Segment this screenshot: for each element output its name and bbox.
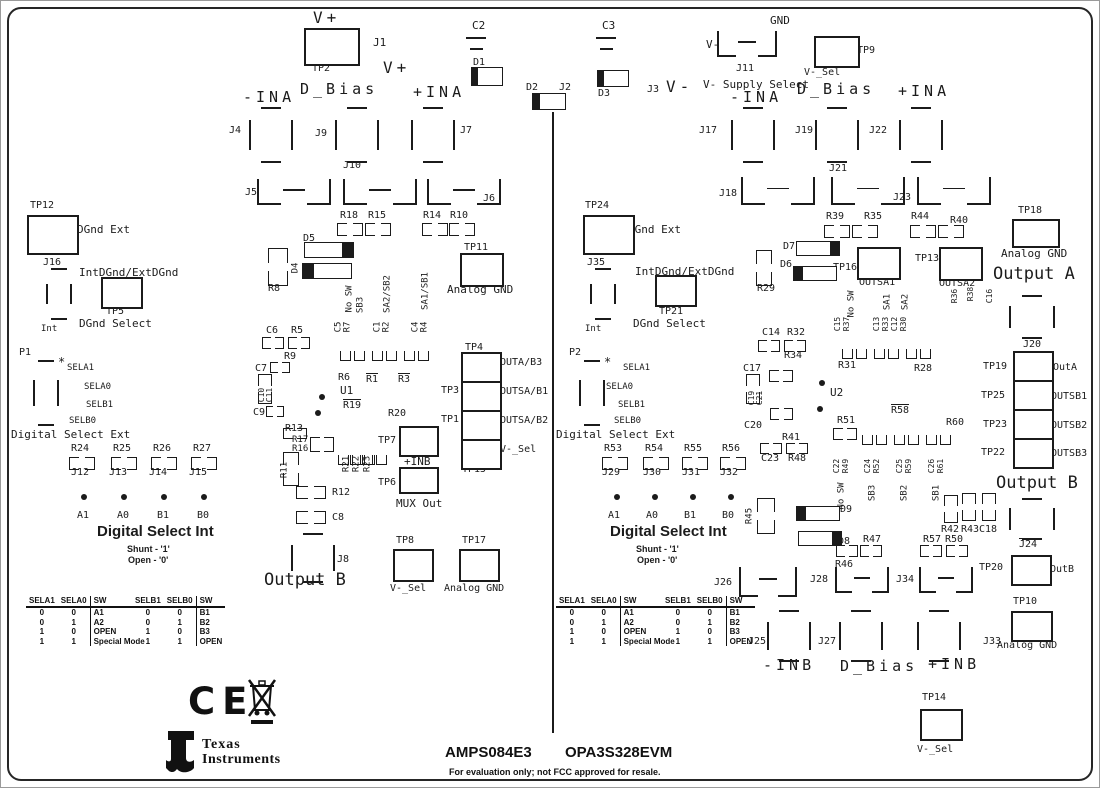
diode-body: [796, 241, 840, 256]
label-r48: R48: [788, 454, 806, 464]
resistor-pads: [69, 457, 95, 470]
label-r19: R19: [343, 399, 361, 411]
truth-table-cell: OPEN: [196, 637, 225, 647]
jumper-3pin: [411, 107, 455, 163]
resistor-pads: [946, 545, 968, 557]
label-c9: C9: [253, 408, 265, 418]
brand-instruments: Instruments: [202, 752, 281, 768]
resistor-pads: [938, 225, 964, 238]
label-tp1: TP1: [441, 415, 459, 425]
jumper-vertical: [46, 268, 72, 320]
label-c15: C15: [834, 317, 842, 331]
testpoint-box: [1012, 219, 1060, 248]
resistor-pads: [758, 340, 780, 352]
label-j5: J5: [245, 188, 257, 198]
label-outa: OutA: [1053, 363, 1077, 373]
label-r5: R5: [291, 326, 303, 336]
label-r54: R54: [645, 444, 663, 454]
label-r47: R47: [863, 535, 881, 545]
testpoint-box: [304, 28, 360, 66]
label-v+: V+: [383, 60, 410, 76]
label-analog-gnd: Analog GND: [444, 584, 504, 594]
truth-table-header: SELA0: [58, 596, 90, 607]
jumper-3pin: [1009, 295, 1055, 339]
label-c8: C8: [332, 513, 344, 523]
label-r56: R56: [722, 444, 740, 454]
pad-pair: [404, 346, 432, 365]
label-sa2: SA2: [902, 294, 911, 310]
label-p1: P1: [19, 348, 31, 358]
label-a1: A1: [608, 511, 620, 521]
ti-logo-icon: [164, 729, 198, 777]
weee-bin-icon: [247, 678, 277, 730]
resistor-pads: [836, 545, 858, 557]
via-dot: [614, 494, 620, 500]
label-u1: U1: [340, 385, 353, 396]
capacitor-symbol: [466, 37, 486, 50]
label-+ina: +INA: [413, 85, 465, 100]
testpoint-box: [655, 275, 697, 307]
label-tp21: TP21: [659, 307, 683, 317]
resistor-pads: [786, 443, 808, 454]
label-shunt-1-: Shunt - '1': [636, 545, 679, 554]
label-j34: J34: [896, 575, 914, 585]
label-analog-gnd: Analog GND: [997, 641, 1057, 651]
via-dot: [817, 406, 823, 412]
testpoint-box: [583, 215, 635, 255]
assembly-number: AMPS084E3: [445, 744, 532, 761]
label-r58: R58: [891, 404, 909, 416]
label-sela1: SELA1: [67, 364, 94, 373]
truth-table-header: SW: [196, 596, 225, 607]
component-pads-vertical: [268, 248, 288, 286]
label-d-bias: D_Bias: [797, 82, 875, 97]
diode-body: [304, 242, 354, 258]
testpoint-box: [814, 36, 860, 68]
truth-table-header: SELB1: [132, 596, 164, 607]
truth-table-cell: 1: [164, 618, 196, 628]
component-pads-vertical: [944, 495, 958, 523]
center-divider-line: [552, 112, 554, 733]
label-j2: J2: [559, 83, 571, 93]
label-outsa-b2: OUTSA/B2: [500, 416, 548, 426]
label-tp19: TP19: [983, 362, 1007, 372]
resistor-pads: [283, 428, 307, 439]
truth-table-cell: 1: [164, 637, 196, 647]
label-digital-select-ext: Digital Select Ext: [556, 429, 675, 440]
testpoint-box: [461, 352, 502, 383]
truth-table-cell: 0: [588, 627, 620, 637]
truth-table-header: SELA0: [588, 596, 620, 607]
label-u2: U2: [830, 387, 843, 398]
label-tp13: TP13: [915, 254, 939, 264]
label-digital-select-int: Digital Select Int: [610, 524, 727, 539]
resistor-pads: [296, 486, 326, 499]
label-r14: R14: [423, 211, 441, 221]
label-c16: C16: [986, 289, 994, 303]
truth-table-cell: B2: [196, 618, 225, 628]
truth-table-header: SELB1: [662, 596, 694, 607]
label-digital-select-ext: Digital Select Ext: [11, 429, 130, 440]
pad-pair: [894, 430, 922, 449]
label-sb2: SB2: [901, 485, 910, 501]
truth-table-header: SELA1: [26, 596, 58, 607]
label-shunt-1-: Shunt - '1': [127, 545, 170, 554]
resistor-pads: [824, 225, 850, 238]
label-dgnd-ext: DGnd Ext: [628, 224, 681, 235]
label-r12: R12: [332, 488, 350, 498]
truth-table-cell: 1: [26, 637, 58, 647]
jumper-3pin: [335, 107, 379, 163]
jumper-vertical: [579, 360, 605, 426]
label-open-0-: Open - '0': [637, 556, 677, 565]
pad-pair: [862, 430, 890, 449]
label-tp25: TP25: [981, 391, 1005, 401]
diode-body: [796, 506, 840, 521]
truth-table-cell: 0: [662, 607, 694, 618]
label-b1: B1: [157, 511, 169, 521]
resistor-pads: [422, 223, 448, 236]
label-tp22: TP22: [981, 448, 1005, 458]
diode-body: [793, 266, 837, 281]
label-d4: D4: [292, 263, 301, 274]
label-output-a: Output A: [993, 266, 1075, 283]
label-r35: R35: [864, 212, 882, 222]
testpoint-box: [1013, 409, 1054, 440]
truth-table-cell: B1: [196, 607, 225, 618]
truth-table-cell: 1: [26, 627, 58, 637]
truth-table-cell: 1: [662, 627, 694, 637]
via-dot: [319, 394, 325, 400]
label-+ina: +INA: [898, 84, 950, 99]
label-j11: J11: [736, 64, 754, 74]
label-r9: R9: [284, 352, 296, 362]
label-a1: A1: [77, 511, 89, 521]
truth-table: SELA1SELA0SW00A101A210OPEN11Special Mode: [26, 596, 148, 646]
truth-table-cell: 1: [58, 618, 90, 628]
via-dot: [652, 494, 658, 500]
label-r7: R7: [344, 322, 353, 333]
label-v-sel: V-_Sel: [917, 745, 953, 755]
truth-table-cell: B2: [726, 618, 755, 628]
truth-table-cell: 0: [164, 627, 196, 637]
label-r2: R2: [383, 322, 392, 333]
truth-table-cell: 0: [132, 618, 164, 628]
label-r1: R1: [366, 373, 378, 385]
label-c12: C12: [891, 317, 899, 331]
label-outb: OutB: [1050, 565, 1074, 575]
label-c20: C20: [744, 421, 762, 431]
label-sb3: SB3: [869, 485, 878, 501]
label-r3: R3: [398, 373, 410, 385]
label-r27: R27: [193, 444, 211, 454]
truth-table-header: SELB0: [164, 596, 196, 607]
label-open-0-: Open - '0': [128, 556, 168, 565]
label-dgnd-ext: DGnd Ext: [77, 224, 130, 235]
label-j17: J17: [699, 126, 717, 136]
label-r38: R38: [967, 287, 975, 301]
label-c26: C26: [928, 459, 936, 473]
label-sb1: SB1: [933, 485, 942, 501]
label-sa1-sb1: SA1/SB1: [422, 272, 431, 310]
label-dgnd-select: DGnd Select: [79, 318, 152, 329]
label-tp10: TP10: [1013, 597, 1037, 607]
product-name: OPA3S328EVM: [565, 744, 672, 761]
label-sa1: SA1: [884, 294, 893, 310]
truth-table-cell: 0: [58, 607, 90, 618]
pad-pair: [874, 344, 902, 363]
label-j27: J27: [818, 637, 836, 647]
label-sela0: SELA0: [606, 383, 633, 392]
label-sb3: SB3: [357, 297, 366, 313]
via-dot: [728, 494, 734, 500]
truth-table-header: SELB0: [694, 596, 726, 607]
pad-pair: [842, 344, 870, 363]
truth-table-grid: SELB1SELB0SW00B101B210B311OPEN: [132, 596, 225, 646]
testpoint-box: [1013, 351, 1054, 382]
via-dot: [690, 494, 696, 500]
label--ina: -INA: [243, 90, 295, 105]
component-pads-vertical: [757, 498, 775, 534]
jumper-3pin: [815, 107, 859, 163]
truth-table-cell: 1: [588, 637, 620, 647]
label-r26: R26: [153, 444, 171, 454]
component-pads-vertical: [283, 452, 299, 486]
jumper-2pin: [741, 177, 815, 205]
resistor-pads: [769, 370, 793, 382]
resistor-pads: [602, 457, 628, 470]
label-b0: B0: [197, 511, 209, 521]
diode-body: [798, 531, 842, 546]
truth-table-cell: 1: [132, 627, 164, 637]
truth-table-cell: 0: [556, 618, 588, 628]
label-d2: D2: [526, 83, 538, 93]
component-pads-vertical: [982, 493, 996, 521]
testpoint-box: [461, 410, 502, 441]
label-j9: J9: [315, 129, 327, 139]
label-a0: A0: [646, 511, 658, 521]
resistor-pads: [682, 457, 708, 470]
label-r53: R53: [604, 444, 622, 454]
truth-table-cell: 0: [662, 618, 694, 628]
label-tp12: TP12: [30, 201, 54, 211]
truth-table-cell: 1: [662, 637, 694, 647]
testpoint-box: [393, 549, 434, 582]
jumper-vertical: [33, 360, 59, 426]
label-b0: B0: [722, 511, 734, 521]
via-dot: [81, 494, 87, 500]
brand-texas: Texas: [202, 737, 241, 753]
label-d6: D6: [780, 260, 792, 270]
truth-table-cell: 1: [132, 637, 164, 647]
resistor-pads: [920, 545, 942, 557]
label-c18: C18: [979, 525, 997, 535]
label-tp20: TP20: [979, 563, 1003, 573]
resistor-pads: [365, 223, 391, 236]
label-mux-out: MUX Out: [396, 498, 442, 509]
component-pads-vertical: [962, 493, 976, 521]
resistor-pads: [266, 406, 284, 417]
truth-table-cell: 1: [588, 618, 620, 628]
label-j21: J21: [829, 164, 847, 174]
label-j1: J1: [373, 37, 386, 48]
pad-pair: [372, 346, 400, 365]
label-tp8: TP8: [396, 536, 414, 546]
resistor-pads: [270, 362, 290, 373]
label-r59: R59: [905, 459, 913, 473]
diode-body: [471, 67, 503, 86]
label-sela0: SELA0: [84, 383, 111, 392]
testpoint-box: [939, 247, 983, 281]
label-r24: R24: [71, 444, 89, 454]
label-selb1: SELB1: [86, 401, 113, 410]
pad-pair: [340, 346, 368, 365]
label-b1: B1: [684, 511, 696, 521]
label-j19: J19: [795, 126, 813, 136]
label-r57: R57: [923, 535, 941, 545]
label-+inb: +INB: [404, 456, 431, 467]
resistor-pads: [852, 225, 878, 238]
diode-body: [302, 263, 352, 279]
jumper-3pin: [1009, 498, 1055, 540]
label-a0: A0: [117, 511, 129, 521]
label-r61: R61: [937, 459, 945, 473]
label-tp23: TP23: [983, 420, 1007, 430]
via-dot: [161, 494, 167, 500]
via-dot: [315, 410, 321, 416]
label-r4: R4: [421, 322, 430, 333]
label-outsb1: OUTSB1: [1051, 392, 1087, 402]
label-j3: J3: [647, 85, 659, 95]
label-sa2-sb2: SA2/SB2: [384, 275, 393, 313]
label-r18: R18: [340, 211, 358, 221]
jumper-2pin: [919, 567, 973, 593]
label-selb0: SELB0: [69, 417, 96, 426]
label-j4: J4: [229, 126, 241, 136]
label-v-sel: V-_Sel: [390, 584, 426, 594]
label-r60: R60: [946, 418, 964, 428]
label-c2: C2: [472, 20, 485, 31]
jumper-2pin: [835, 567, 889, 593]
testpoint-box: [461, 439, 502, 470]
truth-table-cell: 0: [26, 607, 58, 618]
label-r6: R6: [338, 373, 350, 383]
jumper-3pin: [291, 533, 335, 583]
truth-table-grid: SELB1SELB0SW00B101B210B311OPEN: [662, 596, 755, 646]
truth-table-cell: 0: [556, 607, 588, 618]
jumper-2pin: [343, 179, 417, 205]
label-j7: J7: [460, 126, 472, 136]
label-tp24: TP24: [585, 201, 609, 211]
resistor-pads: [770, 408, 793, 420]
label-tp11: TP11: [464, 243, 488, 253]
pad-pair: [926, 430, 954, 449]
label-r32: R32: [787, 328, 805, 338]
testpoint-box: [1011, 611, 1053, 642]
label-c25: C25: [896, 459, 904, 473]
label-tp3: TP3: [441, 386, 459, 396]
jumper-2pin: [717, 31, 777, 57]
label--: *: [604, 356, 611, 368]
jumper-2pin: [257, 179, 331, 205]
diode-body: [597, 70, 629, 87]
testpoint-box: [461, 381, 502, 412]
label-gnd: GND: [770, 15, 790, 26]
truth-table: SELA1SELA0SW00A101A210OPEN11Special Mode: [556, 596, 678, 646]
truth-table: SELB1SELB0SW00B101B210B311OPEN: [662, 596, 755, 646]
label-r20: R20: [388, 409, 406, 419]
label-r55: R55: [684, 444, 702, 454]
ce-mark: CE: [188, 680, 254, 723]
label-d-bias: D_Bias: [300, 82, 378, 97]
via-dot: [121, 494, 127, 500]
label-outsb2: OUTSB2: [1051, 421, 1087, 431]
truth-table-cell: B3: [726, 627, 755, 637]
label-r36: R36: [951, 289, 959, 303]
truth-table-grid: SELA1SELA0SW00A101A210OPEN11Special Mode: [26, 596, 148, 646]
truth-table-cell: 0: [58, 627, 90, 637]
resistor-pads: [310, 437, 334, 452]
label-sela1: SELA1: [623, 364, 650, 373]
truth-table-cell: 1: [556, 627, 588, 637]
label-selb0: SELB0: [614, 417, 641, 426]
testpoint-box: [459, 549, 500, 582]
label-c22: C22: [833, 459, 841, 473]
jumper-vertical: [590, 268, 616, 320]
label-selb1: SELB1: [618, 401, 645, 410]
resistor-pads: [151, 457, 177, 470]
testpoint-box: [399, 467, 439, 494]
label-d9: D9: [840, 505, 852, 515]
label-j35: J35: [587, 258, 605, 268]
label-c13: C13: [873, 317, 881, 331]
label-c3: C3: [602, 20, 615, 31]
label-p2: P2: [569, 348, 581, 358]
label-no-sw: No SW: [346, 285, 355, 312]
label-output-b: Output B: [996, 475, 1078, 492]
label--: *: [58, 356, 65, 368]
resistor-pads: [910, 225, 936, 238]
jumper-3pin: [731, 107, 775, 163]
testpoint-box: [1013, 438, 1054, 469]
via-dot: [201, 494, 207, 500]
truth-table: SELB1SELB0SW00B101B210B311OPEN: [132, 596, 225, 646]
truth-table-cell: OPEN: [726, 637, 755, 647]
label-r28: R28: [914, 364, 932, 374]
resistor-pads: [643, 457, 669, 470]
label-tp14: TP14: [922, 693, 946, 703]
testpoint-box: [27, 215, 79, 255]
pad-pair: [362, 450, 390, 469]
label-j16: J16: [43, 258, 61, 268]
label-r45: R45: [746, 508, 755, 524]
pcb-silkscreen-diagram: V+TP2J1C2D1V+D_Bias-INA+INAJ4J9J7J10J5J6…: [0, 0, 1100, 788]
label-d7: D7: [783, 242, 795, 252]
resistor-pads: [191, 457, 217, 470]
diode-body: [532, 93, 566, 110]
truth-table-cell: 0: [588, 607, 620, 618]
label-j26: J26: [714, 578, 732, 588]
truth-table-grid: SELA1SELA0SW00A101A210OPEN11Special Mode: [556, 596, 678, 646]
label-outa-b3: OUTA/B3: [500, 358, 542, 368]
label-r15: R15: [368, 211, 386, 221]
testpoint-box: [460, 253, 504, 287]
truth-table-cell: 0: [26, 618, 58, 628]
fcc-disclaimer: For evaluation only; not FCC approved fo…: [449, 767, 661, 777]
label-digital-select-int: Digital Select Int: [97, 524, 214, 539]
testpoint-box: [399, 426, 439, 457]
resistor-pads: [337, 223, 363, 236]
